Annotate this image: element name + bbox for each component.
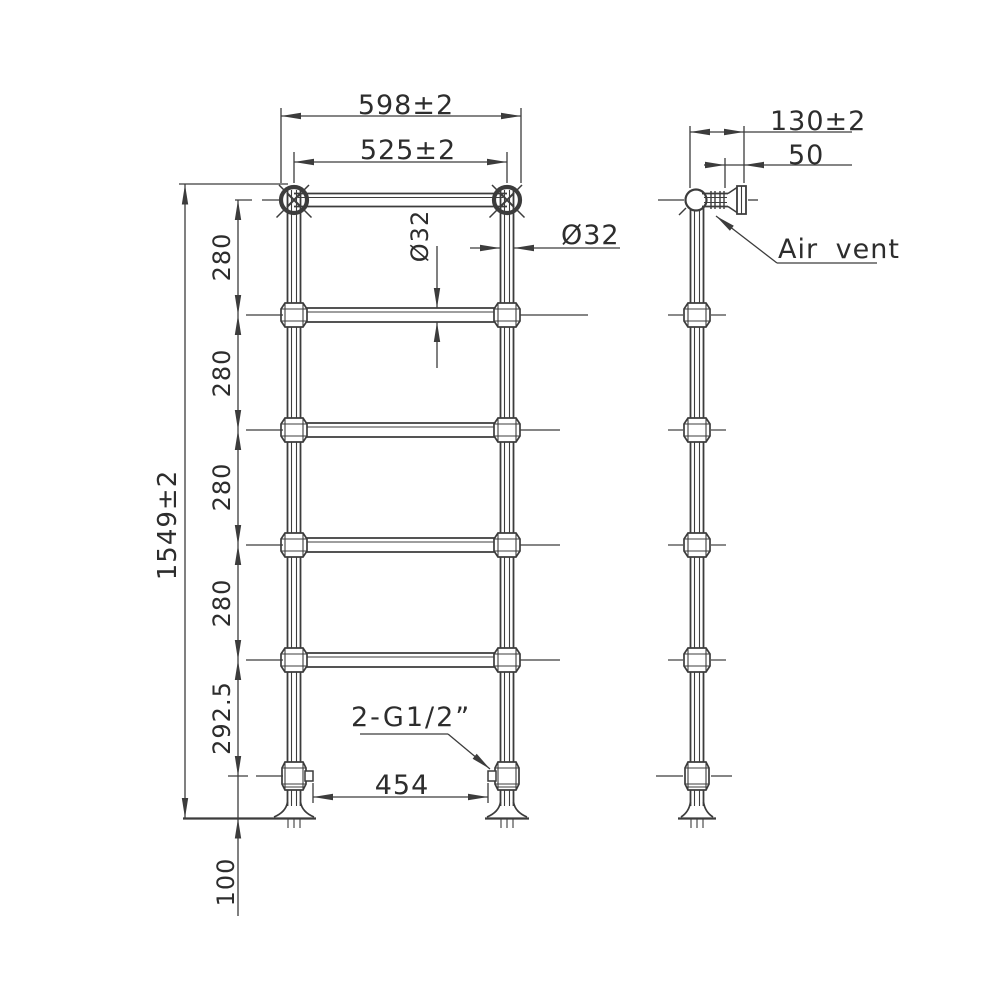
dim-depth: 130±2 <box>770 108 866 135</box>
dim-overall-width: 598±2 <box>326 92 486 119</box>
connections-label: 2-G1/2” <box>351 704 471 731</box>
dim-overall-height: 1549±2 <box>155 450 181 600</box>
air-vent-label: Air vent <box>778 236 900 263</box>
dim-bracket-offset: 50 <box>788 142 824 169</box>
dim-floor-clearance: 100 <box>213 807 239 957</box>
towel-rail-technical-drawing: 598±2 525±2 454 Ø32 2-G1/2” 130±2 50 Air… <box>0 0 1000 1000</box>
dim-leg-diameter: Ø32 <box>561 222 620 249</box>
generated-linework <box>179 108 877 916</box>
dim-connections-width: 454 <box>322 772 482 799</box>
drawing-linework <box>0 0 1000 1000</box>
dim-rung-diameter: Ø32 <box>407 161 433 311</box>
dim-centres-width: 525±2 <box>328 137 488 164</box>
dim-lower-gap: 292.5 <box>209 643 235 793</box>
